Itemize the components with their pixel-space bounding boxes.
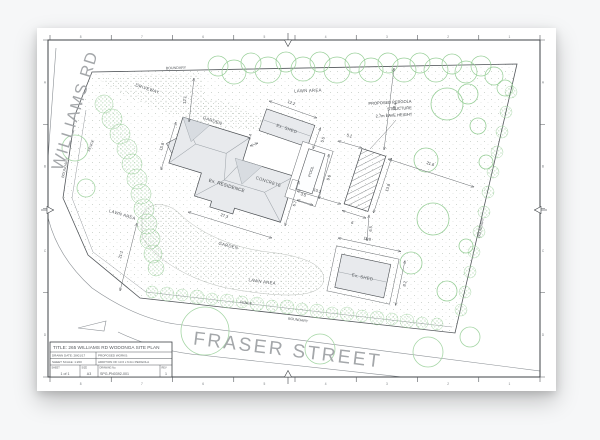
title-block-drawing-no-value: SPG-PN0392-001 xyxy=(100,372,129,376)
grid-letter: B xyxy=(44,165,46,169)
boundary-label-top: BOUNDARY xyxy=(166,66,187,71)
site-plan-drawing: Ex. RESIDENCE Ex. SHED POOL Ex. SHE xyxy=(0,0,600,440)
title-block-size-value: A3 xyxy=(87,372,91,376)
title-block-scale: SHEET SCALE: 1:200 xyxy=(52,360,82,364)
grid-number: 2 xyxy=(447,382,449,386)
title-block-rev-label: REV xyxy=(162,367,167,370)
title-block-proposed-works: PROPOSED WORKS: xyxy=(98,354,128,358)
title-block-drawn-date: DRAWN DATE: 28/01/17 xyxy=(52,354,86,358)
title-block-rev-value: 1 xyxy=(165,372,167,376)
grid-number: 7 xyxy=(141,382,143,386)
lawn-label-top: LAWN AREA xyxy=(294,88,322,94)
title-block-title: TITLE: 265 WILLIAMS RD WODONGA SITE PLAN xyxy=(53,345,160,350)
grid-number: 4 xyxy=(325,382,327,386)
grid-number: 1 xyxy=(509,382,511,386)
grid-number: 4 xyxy=(325,35,327,39)
grid-number: 6 xyxy=(202,35,204,39)
title-block-sheet-label: SHEET xyxy=(52,367,61,370)
grid-number: 7 xyxy=(141,35,143,39)
title-block: TITLE: 265 WILLIAMS RD WODONGA SITE PLAN… xyxy=(50,342,172,377)
dim-driveway-depth: 12.1 xyxy=(182,95,188,104)
grid-number: 2 xyxy=(447,35,449,39)
grid-number: 5 xyxy=(264,382,266,386)
grid-number: 8 xyxy=(80,382,82,386)
grid-number: 6 xyxy=(202,382,204,386)
title-block-works-description: ADDITION OF 13.6 x 6.0m PERGOLA xyxy=(98,360,149,364)
grid-letter: B xyxy=(542,165,544,169)
grid-number: 5 xyxy=(264,35,266,39)
scanned-site-plan-page: Ex. RESIDENCE Ex. SHED POOL Ex. SHE xyxy=(0,0,600,440)
title-block-drawing-no-label: DRAWING No. xyxy=(100,367,117,370)
title-block-size-label: SIZE xyxy=(82,367,88,370)
grid-number: 1 xyxy=(509,35,511,39)
grid-number: 8 xyxy=(80,35,82,39)
grid-number: 3 xyxy=(386,382,388,386)
title-block-sheet-value: 1 of 1 xyxy=(61,372,70,376)
grid-number: 3 xyxy=(386,35,388,39)
